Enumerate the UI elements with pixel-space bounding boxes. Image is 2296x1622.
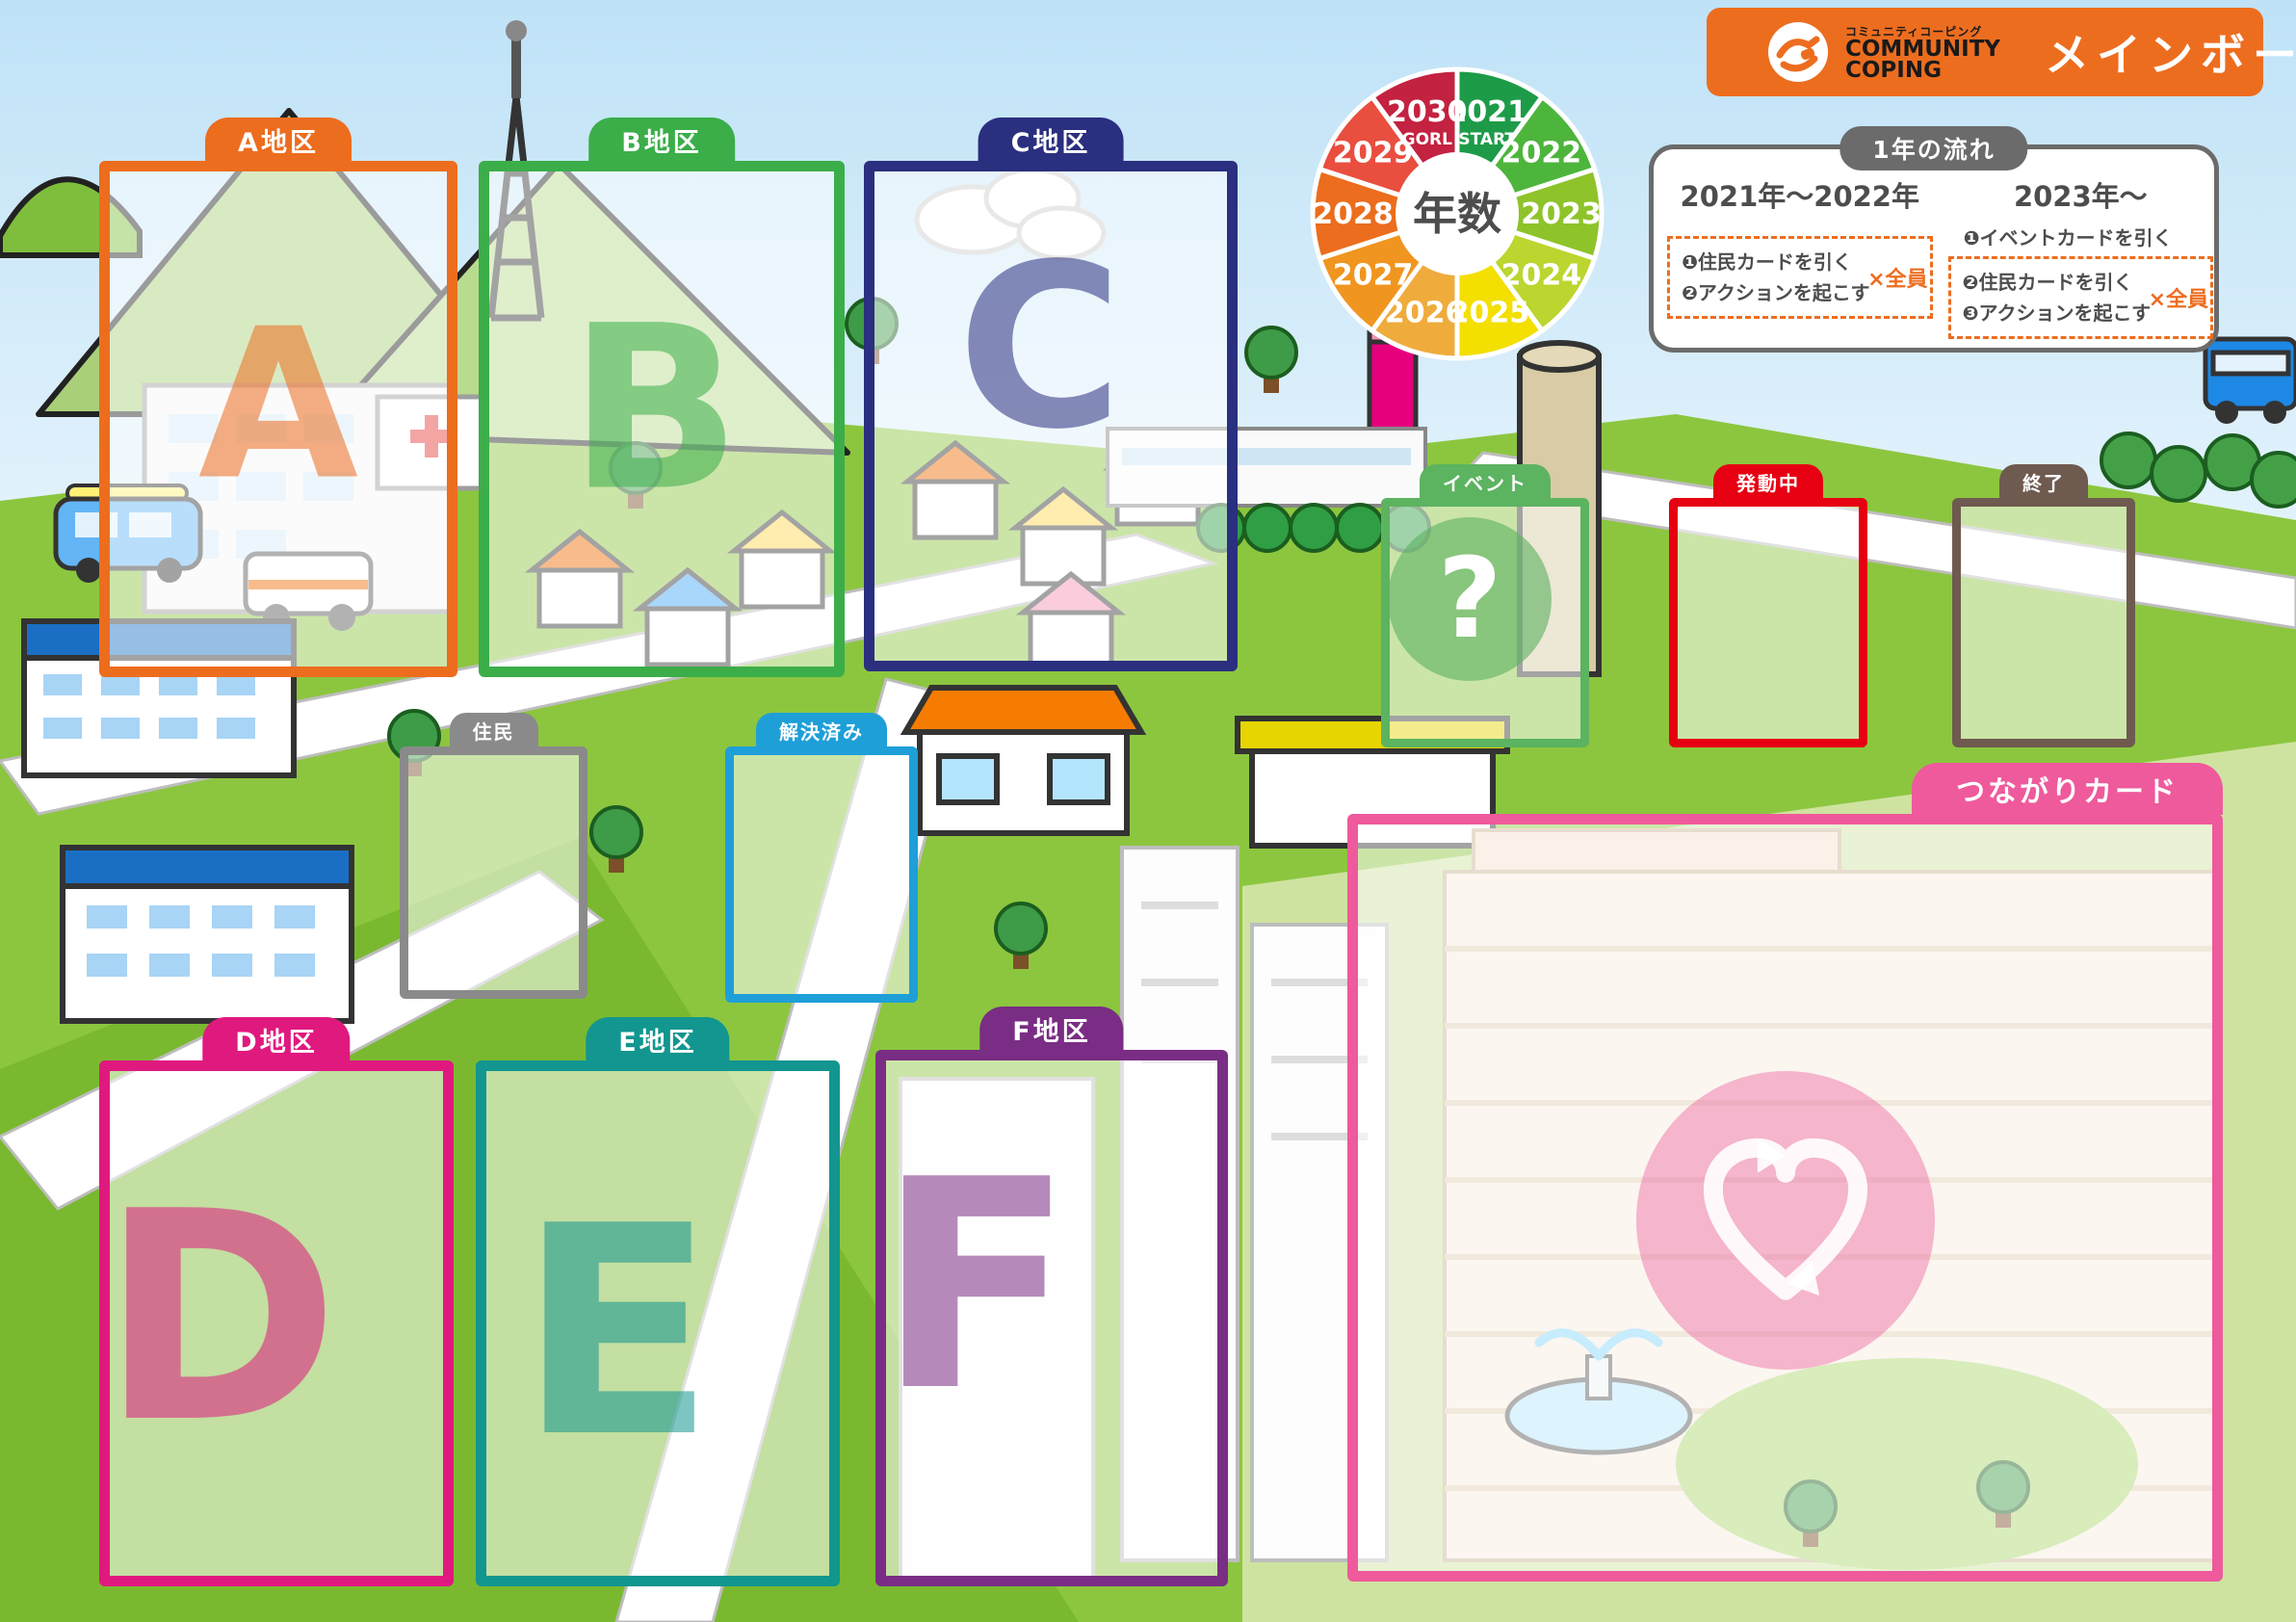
heart-cycle-icon [1636,1071,1935,1370]
flow-right-step-2: ❷住民カードを引く [1963,267,2152,298]
brand-block: コミュニティコーピング COMMUNITY COPING [1845,23,2000,82]
year-label-2027: 2027 [1333,258,1414,292]
year-label-2022: 2022 [1501,137,1582,170]
flow-right-step-3: ❸アクションを起こす [1963,298,2152,328]
zone-connection-card[interactable]: つながりカード [1347,814,2223,1582]
zone-finished-tab: 終了 [1999,464,2088,499]
zone-finished[interactable]: 終了 [1952,498,2135,747]
flow-panel-title: 1年の流れ [1839,126,2027,170]
zone-resolved[interactable]: 解決済み [725,746,918,1003]
zone-district-a[interactable]: A地区 A [99,161,457,677]
zone-district-d[interactable]: D地区 D [99,1060,454,1586]
brand-line2: COPING [1845,61,2000,82]
zone-event[interactable]: イベント ? [1381,498,1589,747]
flow-col-2021-2022: 2021年〜2022年 ❶住民カードを引く ❷アクションを起こす ×全員 [1667,174,1933,334]
zone-connection-card-tab: つながりカード [1912,763,2223,815]
zone-resident-tab: 住民 [450,713,538,747]
zone-district-f-tab: F地区 [979,1007,1123,1051]
year-label-2023: 2023 [1521,197,1602,231]
zone-district-c-tab: C地区 [978,118,1124,162]
zone-event-tab: イベント [1420,464,1551,499]
zone-district-b-letter: B [568,296,741,522]
flow-panel: 1年の流れ 2021年〜2022年 ❶住民カードを引く ❷アクションを起こす ×… [1649,144,2219,353]
year-wheel-center-label: 年数 [1413,188,1501,240]
zone-active-tab: 発動中 [1713,464,1823,499]
question-mark-icon: ? [1388,517,1552,681]
flow-right-prestep: ❶イベントカードを引く [1948,222,2173,250]
flow-right-heading: 2023年〜 [2014,174,2148,215]
zone-district-e-tab: E地区 [586,1017,729,1061]
zone-district-d-tab: D地区 [202,1017,350,1061]
zone-district-b-tab: B地区 [588,118,735,162]
community-coping-logo-icon [1766,20,1830,84]
zone-district-c-letter: C [957,234,1123,460]
year-label-2026: 2026 [1385,297,1466,330]
zone-district-c[interactable]: C地区 C [864,161,1238,671]
zone-active[interactable]: 発動中 [1669,498,1867,747]
zone-district-e-letter: E [518,1189,716,1478]
flow-left-step-2: ❷アクションを起こす [1682,277,1870,308]
flow-left-note: ×全員 [1867,262,1927,293]
zone-district-a-tab: A地区 [205,118,352,162]
flow-left-steps-box: ❶住民カードを引く ❷アクションを起こす ×全員 [1667,236,1933,319]
flow-col-2023: 2023年〜 ❶イベントカードを引く ❷住民カードを引く ❸アクションを起こす … [1948,174,2214,334]
zone-district-b[interactable]: B地区 B [479,161,845,677]
zone-district-f-letter: F [876,1142,1074,1431]
header-banner: コミュニティコーピング COMMUNITY COPING メインボード [1707,8,2263,96]
year-label-2028: 2028 [1313,197,1394,231]
flow-left-step-1: ❶住民カードを引く [1682,247,1870,277]
zone-district-f[interactable]: F地区 F [875,1050,1228,1586]
year-wheel[interactable]: 2021START2022202320242025202620272028202… [1303,60,1611,368]
zone-district-d-letter: D [100,1174,340,1463]
zone-district-e[interactable]: E地区 E [476,1060,840,1586]
zone-district-a-letter: A [198,301,358,508]
main-board: A地区 A B地区 B C地区 C イベント ? 発動中 終了 住民 解決済み … [0,0,2296,1622]
flow-right-note: ×全員 [2149,282,2208,313]
flow-left-heading: 2021年〜2022年 [1681,174,1919,215]
zone-resolved-tab: 解決済み [756,713,887,747]
page-title: メインボード [2045,20,2296,84]
zone-resident[interactable]: 住民 [400,746,587,999]
flow-right-steps-box: ❷住民カードを引く ❸アクションを起こす ×全員 [1948,256,2214,339]
